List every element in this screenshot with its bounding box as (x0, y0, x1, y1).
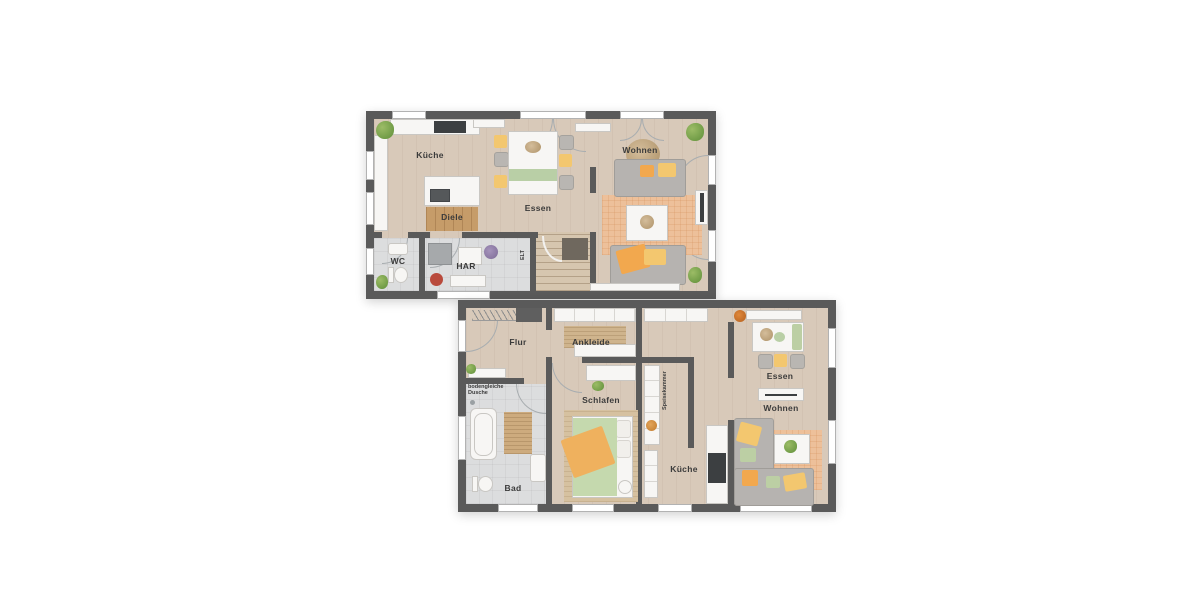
coats (516, 308, 542, 322)
room-label-ankleide: Ankleide (562, 338, 620, 348)
wall-segment (546, 308, 552, 330)
terrace-door (520, 111, 586, 119)
wall-segment (642, 357, 694, 363)
plant-icon (376, 275, 388, 289)
pantry-shelves (644, 365, 660, 445)
table-plant (640, 215, 654, 229)
table-plant (784, 440, 797, 453)
balcony-door (620, 111, 664, 119)
wardrobe (554, 308, 636, 322)
cooktop (434, 121, 466, 133)
dining-chair (559, 154, 572, 167)
floor-plan-canvas: Küche Diele Essen Wohnen WC HAR ELT (0, 0, 1200, 600)
table-runner (509, 169, 557, 181)
room-label-speisekammer: Speisekammer (662, 366, 672, 416)
room-label-wohnen: Wohnen (754, 404, 808, 414)
room-label-diele: Diele (428, 213, 476, 223)
window (828, 328, 836, 368)
dining-chair (559, 135, 574, 150)
upper-floor-plan: Küche Diele Essen Wohnen WC HAR ELT (366, 111, 716, 299)
shelf (450, 275, 486, 287)
room-label-bad: Bad (492, 484, 534, 494)
wreath-decor (646, 420, 657, 431)
vacuum-robot (430, 273, 443, 286)
wall-segment (582, 357, 642, 363)
wall-shelf (746, 310, 802, 320)
corridor-wardrobe (644, 308, 708, 322)
wall-segment (590, 167, 596, 193)
room-label-wohnen: Wohnen (608, 146, 672, 156)
dining-chair (494, 152, 509, 167)
lavender-plant (484, 245, 498, 259)
room-label-elt: ELT (520, 245, 528, 265)
washbasin (530, 454, 546, 482)
tv-sideboard (590, 283, 680, 291)
room-label-kueche: Küche (402, 151, 458, 161)
dining-chair (559, 175, 574, 190)
bathtub (470, 408, 497, 460)
laundry-basket (618, 480, 632, 494)
pillow (616, 420, 631, 438)
kitchen-tall-unit (374, 135, 388, 231)
shower-note-label: bodengleiche Dusche (468, 384, 502, 397)
window (392, 111, 426, 119)
pillow (742, 470, 758, 486)
window (458, 416, 466, 460)
door (708, 230, 716, 262)
sideboard-decor (765, 394, 797, 396)
wardrobe (586, 365, 636, 381)
washbasin (388, 243, 408, 255)
dining-chair (758, 354, 773, 369)
window (828, 420, 836, 464)
sideboard (758, 388, 804, 401)
dining-bench (792, 324, 802, 350)
dining-chair (790, 354, 805, 369)
throw-blanket (658, 163, 676, 177)
tv-icon (700, 193, 704, 222)
window (498, 504, 538, 512)
pillow (740, 448, 756, 462)
pillow (766, 476, 780, 488)
plant-icon (688, 267, 702, 283)
sideboard (473, 119, 505, 128)
wall-segment (728, 322, 734, 378)
room-label-essen: Essen (756, 372, 804, 382)
table-decor (774, 332, 785, 342)
room-label-har: HAR (440, 262, 492, 272)
room-label-essen: Essen (514, 204, 562, 214)
room-label-wc: WC (380, 257, 416, 267)
window (366, 248, 374, 275)
window (366, 192, 374, 225)
door (708, 155, 716, 185)
lower-floor-plan: Flur Ankleide bodengleiche Dusche Bad Sc… (458, 300, 836, 512)
room-label-flur: Flur (494, 338, 542, 348)
kitchen-tall-unit (644, 450, 658, 498)
table-decor (760, 328, 773, 341)
plant-icon (466, 364, 476, 374)
bathtub-basin (474, 413, 493, 456)
wall-segment (462, 232, 538, 238)
window (658, 504, 692, 512)
plant-icon (592, 381, 604, 391)
flower-decor (734, 310, 746, 322)
toilet (394, 267, 408, 283)
plant-icon (686, 123, 704, 141)
window (572, 504, 614, 512)
toilet (478, 476, 493, 492)
table-decor (525, 141, 541, 153)
window (366, 151, 374, 180)
wall-segment (688, 363, 694, 448)
wall-segment (374, 232, 382, 238)
room-label-kueche: Küche (658, 465, 710, 475)
sink (430, 189, 450, 202)
shower-drain (470, 400, 475, 405)
wall-segment (530, 232, 536, 291)
entry-door (458, 320, 466, 352)
bath-mat (504, 412, 532, 454)
wall-segment (546, 357, 552, 504)
room-label-schlafen: Schlafen (572, 396, 630, 406)
stair-void (562, 238, 588, 260)
dining-chair (774, 354, 787, 367)
pillow (616, 440, 631, 458)
dining-chair (494, 175, 507, 188)
window (437, 291, 490, 299)
dining-chair (494, 135, 507, 148)
throw-blanket (644, 249, 666, 265)
wall-shelf (575, 123, 611, 132)
pillow (640, 165, 654, 177)
plant-icon (376, 121, 394, 139)
cooktop (708, 453, 726, 483)
wall-segment (419, 238, 425, 291)
